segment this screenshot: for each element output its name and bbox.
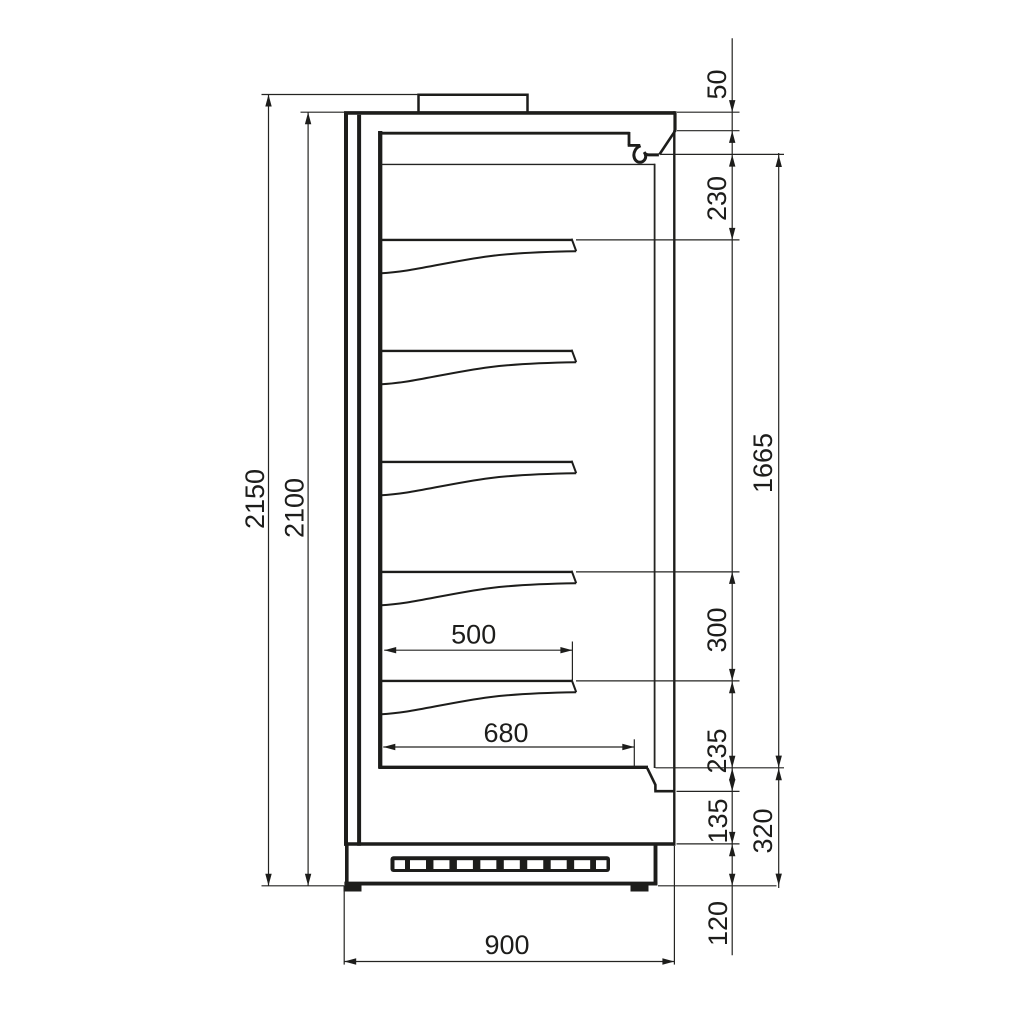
svg-text:230: 230 [702,176,732,221]
svg-text:900: 900 [484,930,529,960]
svg-text:500: 500 [451,619,496,649]
svg-text:2100: 2100 [279,478,309,538]
svg-text:2150: 2150 [240,469,270,529]
svg-text:235: 235 [702,728,732,773]
svg-text:300: 300 [702,607,732,652]
svg-text:120: 120 [703,901,733,946]
svg-text:50: 50 [702,69,732,99]
svg-text:680: 680 [483,718,528,748]
svg-text:135: 135 [703,798,733,843]
svg-text:1665: 1665 [748,433,778,493]
svg-text:320: 320 [748,808,778,853]
